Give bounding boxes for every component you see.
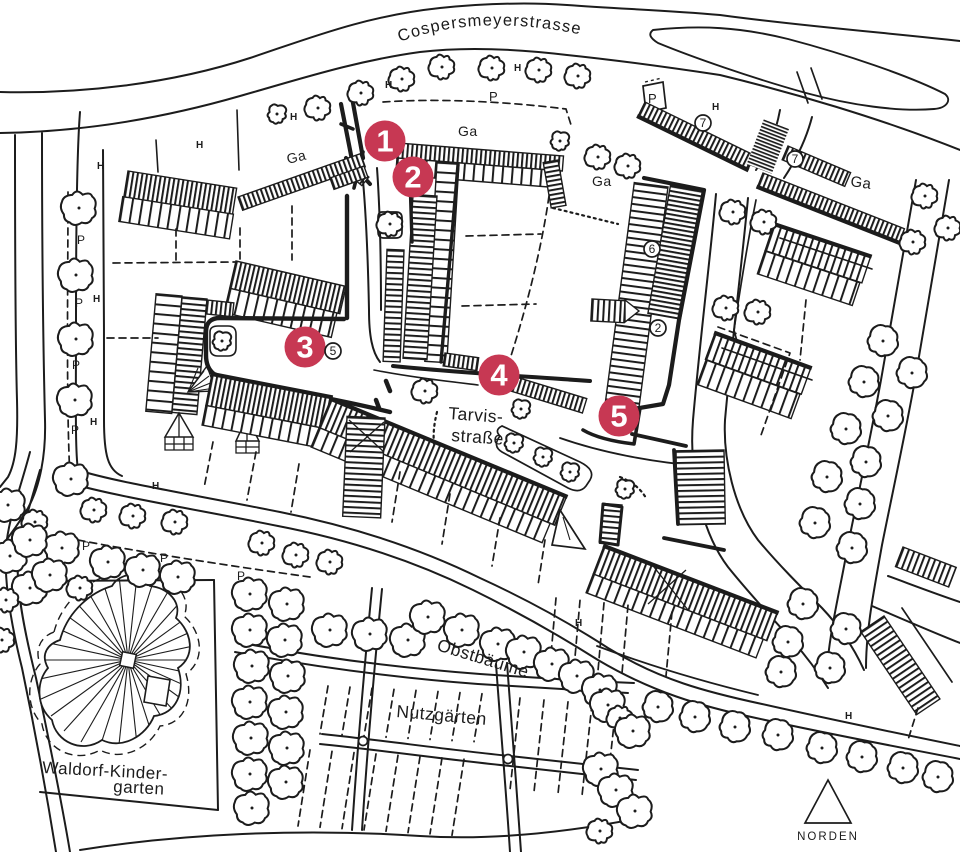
svg-text:H: H (152, 481, 160, 492)
svg-text:NORDEN: NORDEN (797, 831, 859, 843)
svg-text:H: H (97, 161, 105, 172)
svg-text:7: 7 (792, 152, 799, 166)
svg-text:3: 3 (296, 330, 313, 365)
svg-text:P: P (82, 539, 91, 553)
svg-text:5: 5 (330, 344, 337, 358)
svg-text:H: H (575, 618, 583, 629)
svg-text:7: 7 (700, 116, 707, 130)
svg-text:garten: garten (113, 777, 165, 799)
svg-text:P: P (71, 423, 80, 437)
svg-text:H: H (90, 417, 98, 428)
svg-text:H: H (712, 102, 720, 113)
svg-text:P: P (160, 551, 169, 565)
svg-text:Tarvis-: Tarvis- (448, 403, 504, 427)
svg-text:P: P (237, 569, 246, 583)
svg-text:H: H (514, 63, 522, 74)
svg-text:H: H (385, 80, 393, 91)
svg-text:5: 5 (610, 399, 627, 434)
svg-text:H: H (196, 140, 204, 151)
svg-text:2: 2 (404, 160, 421, 195)
svg-text:H: H (93, 294, 101, 305)
svg-text:H: H (845, 711, 853, 722)
svg-text:6: 6 (649, 242, 656, 256)
svg-text:straße: straße (451, 425, 505, 449)
svg-text:P: P (75, 296, 84, 310)
svg-text:P: P (489, 89, 498, 104)
svg-text:P: P (72, 358, 81, 372)
svg-text:2: 2 (655, 321, 662, 335)
svg-text:1: 1 (376, 124, 393, 159)
svg-text:H: H (290, 112, 298, 123)
svg-text:P: P (77, 233, 86, 247)
svg-text:Ga: Ga (849, 173, 872, 193)
svg-text:Ga: Ga (458, 123, 478, 139)
svg-text:4: 4 (490, 358, 508, 393)
svg-text:Ga: Ga (592, 173, 612, 189)
